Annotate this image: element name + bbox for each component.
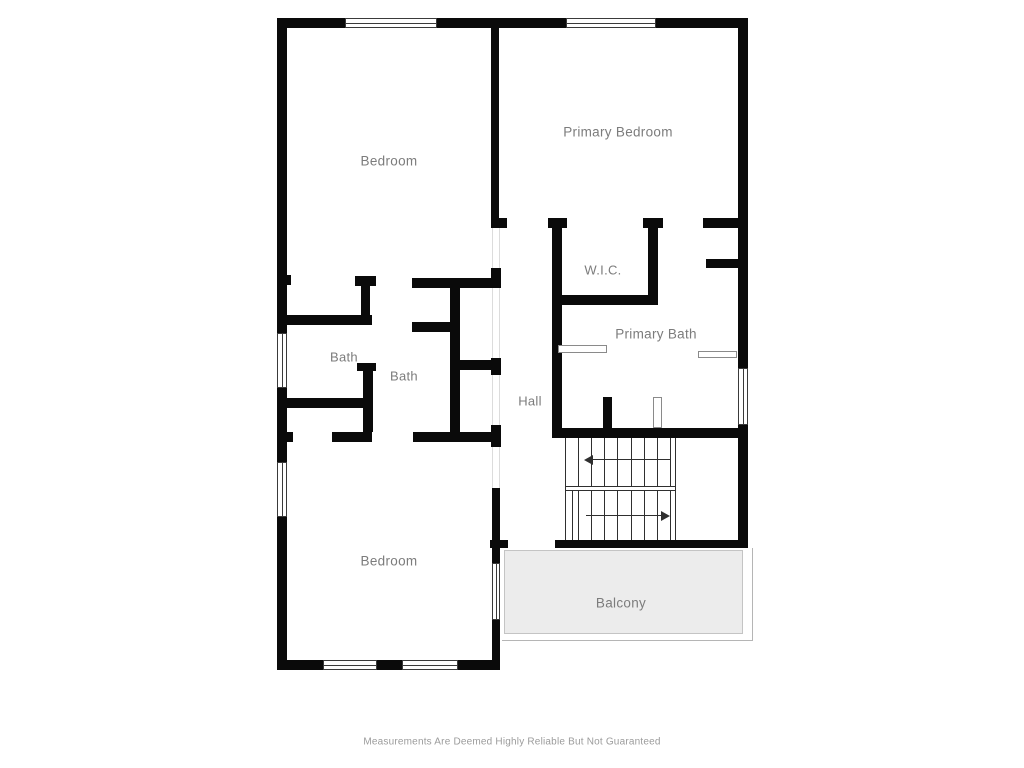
door-opening [492, 375, 500, 425]
door-opening [492, 447, 500, 488]
wall-segment [552, 428, 747, 438]
stair-tread [644, 438, 645, 486]
door-opening [492, 228, 500, 268]
wall-segment [492, 488, 500, 563]
window-mullion [496, 564, 497, 619]
wall-segment [277, 315, 372, 325]
door-opening [492, 288, 500, 358]
window-glyph [345, 18, 437, 28]
vanity-counter-2 [698, 351, 737, 358]
window-glyph [402, 660, 458, 670]
window-mullion [282, 334, 283, 387]
stair-direction-arrow-left [584, 455, 593, 465]
stair-tread [604, 438, 605, 486]
wall-segment [277, 517, 287, 670]
window-mullion [403, 665, 457, 666]
stair-tread [631, 438, 632, 486]
balcony-deck [504, 550, 743, 634]
stair-direction-line [586, 459, 670, 460]
wall-segment [277, 660, 323, 670]
window-glyph [492, 563, 500, 620]
disclaimer-text: Measurements Are Deemed Highly Reliable … [363, 737, 660, 748]
stair-newel-post [653, 397, 662, 428]
vanity-counter-1 [558, 345, 607, 353]
wall-segment [413, 432, 500, 442]
stair-tread [657, 438, 658, 486]
wall-segment [738, 18, 748, 368]
window-mullion [324, 665, 376, 666]
wall-segment [492, 620, 500, 670]
stair-tread [578, 490, 579, 540]
wall-segment [548, 218, 567, 228]
wall-segment [491, 28, 499, 220]
window-mullion [346, 23, 436, 24]
room-label-primary-bath: Primary Bath [615, 327, 697, 342]
room-label-primary-bedroom: Primary Bedroom [563, 125, 673, 140]
stair-direction-line [586, 515, 668, 516]
wall-segment [555, 540, 746, 548]
wall-segment [491, 358, 501, 375]
wall-segment [460, 360, 492, 370]
room-label-bedroom-lower: Bedroom [361, 554, 418, 569]
wall-segment [363, 365, 373, 432]
room-label-balcony: Balcony [596, 596, 646, 611]
wall-segment [491, 218, 507, 228]
window-glyph [277, 333, 287, 388]
wall-segment [648, 228, 658, 305]
stair-stringer-line [675, 438, 676, 540]
wall-segment [332, 432, 372, 442]
room-label-hall: Hall [518, 394, 542, 409]
window-mullion [567, 23, 655, 24]
wall-segment [491, 268, 501, 288]
wall-segment [552, 228, 562, 438]
floor-plan-page: BedroomPrimary BedroomW.I.C.BathBathPrim… [0, 0, 1024, 768]
room-label-wic: W.I.C. [584, 263, 621, 278]
stair-landing-line [565, 486, 675, 487]
stair-landing-line [565, 490, 675, 491]
window-mullion [743, 369, 744, 424]
floor-plan: BedroomPrimary BedroomW.I.C.BathBathPrim… [0, 0, 1024, 768]
room-label-bedroom-upper: Bedroom [361, 154, 418, 169]
wall-segment [738, 425, 748, 548]
stair-tread [578, 438, 579, 486]
stair-tread [617, 438, 618, 486]
stair-stringer-line [565, 438, 566, 540]
wall-segment [277, 275, 291, 285]
stair-stringer-line [572, 490, 573, 540]
wall-segment [490, 540, 508, 548]
wall-segment [643, 218, 663, 228]
room-label-bath-left: Bath [330, 350, 358, 365]
wall-segment [277, 398, 373, 408]
wall-segment [277, 18, 287, 333]
window-glyph [566, 18, 656, 28]
stair-tread [670, 438, 671, 486]
window-glyph [323, 660, 377, 670]
window-mullion [282, 463, 283, 516]
wall-segment [656, 18, 747, 28]
stair-direction-arrow-right [661, 511, 670, 521]
window-glyph [277, 462, 287, 517]
wall-segment [603, 397, 612, 430]
wall-segment [277, 432, 293, 442]
window-glyph [738, 368, 748, 425]
room-label-bath-middle: Bath [390, 369, 418, 384]
wall-segment [552, 295, 658, 305]
wall-segment [450, 278, 460, 442]
wall-segment [437, 18, 566, 28]
wall-segment [377, 660, 402, 670]
wall-segment [703, 218, 747, 228]
wall-segment [277, 18, 345, 28]
wall-segment [706, 259, 747, 268]
stair-tread [670, 490, 671, 540]
wall-segment [412, 322, 450, 332]
